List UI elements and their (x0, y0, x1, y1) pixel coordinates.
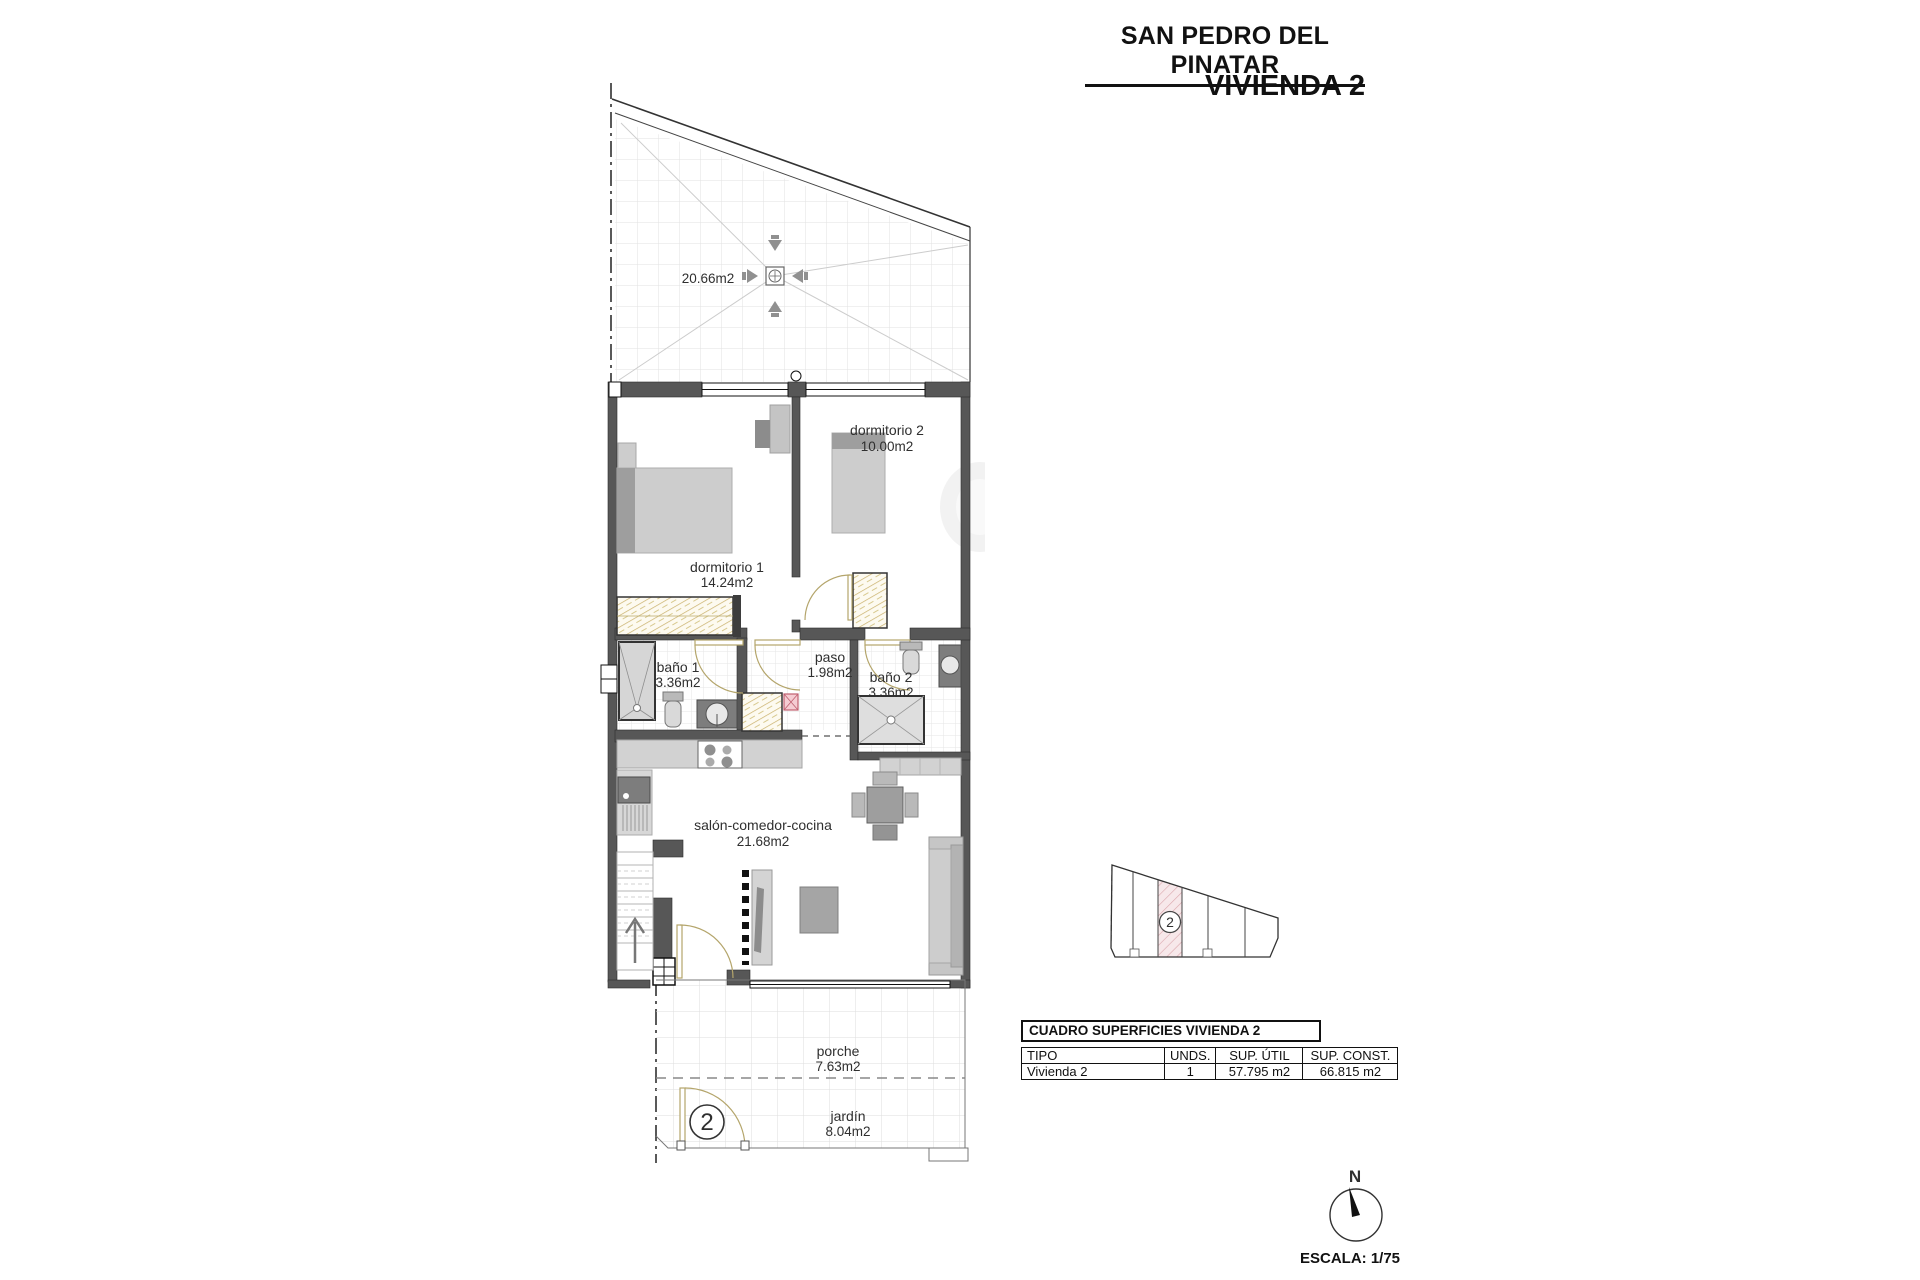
desk (770, 405, 790, 453)
floor-plan-drawing: 20.66m2 (595, 75, 985, 1170)
room-area-bano1: 3.36m2 (655, 675, 700, 690)
col-header-sup-util: SUP. ÚTIL (1216, 1048, 1303, 1064)
col-header-sup-const: SUP. CONST. (1303, 1048, 1398, 1064)
col-header-unds: UNDS. (1165, 1048, 1216, 1064)
wall-end-cap (609, 382, 621, 397)
drainer (623, 805, 647, 831)
room-label-paso: paso (815, 649, 846, 665)
bedside-table (618, 443, 636, 468)
scale-label: ESCALA: 1/75 (1285, 1250, 1415, 1267)
room-label-jardin: jardín (829, 1108, 865, 1124)
surface-table-title: CUADRO SUPERFICIES VIVIENDA 2 (1021, 1020, 1321, 1042)
stair-wall-stub (653, 840, 683, 857)
terrace-solarium: 20.66m2 (612, 99, 970, 382)
room-area-paso: 1.98m2 (807, 665, 852, 680)
living-furniture (746, 837, 964, 975)
chair (852, 793, 865, 817)
room-area-dormitorio1: 14.24m2 (701, 575, 754, 590)
room-area-jardin: 8.04m2 (825, 1124, 870, 1139)
dorm1-wardrobe-cap (733, 595, 741, 637)
washbasin (941, 656, 959, 674)
gate-post (741, 1141, 749, 1150)
key-plan-unit-dividers (1133, 872, 1245, 957)
downpipe-icon (791, 371, 801, 381)
north-label: N (1349, 1167, 1361, 1186)
cooktop (698, 741, 742, 768)
gate-post (677, 1141, 685, 1150)
dorm1-furniture (617, 405, 790, 553)
desk-chair (755, 420, 770, 448)
dining-table (867, 787, 903, 823)
floor-plan-sheet: SAN PEDRO DEL PINATAR VIVIENDA 2 (0, 0, 1920, 1280)
chair (905, 793, 918, 817)
bottom-wall-block (727, 970, 750, 985)
compass-icon: N (1315, 1162, 1405, 1252)
room-area-porche: 7.63m2 (815, 1059, 860, 1074)
sink (618, 777, 650, 803)
sofa-seat (929, 849, 951, 963)
top-wall-right (925, 382, 970, 397)
unit-number: 2 (700, 1109, 713, 1136)
paso-closet (742, 693, 782, 731)
unit-title: VIVIENDA 2 (1170, 70, 1400, 103)
bedroom-partition-stub (792, 620, 800, 632)
entrance-door (677, 925, 733, 978)
surface-table: CUADRO SUPERFICIES VIVIENDA 2 TIPO UNDS.… (1021, 1020, 1398, 1080)
dining-set (852, 772, 918, 840)
mid-wall-right (910, 628, 970, 640)
terrace-area-label: 20.66m2 (682, 271, 735, 286)
roof-drain-icon (766, 267, 784, 285)
bottom-wall-right (950, 980, 970, 988)
toilet-tank (900, 642, 922, 650)
surface-table-header-row: TIPO UNDS. SUP. ÚTIL SUP. CONST. (1022, 1048, 1398, 1064)
toilet-tank (663, 692, 683, 701)
top-wall-column (788, 382, 806, 397)
surface-table-data-row: Vivienda 2 1 57.795 m2 66.815 m2 (1022, 1064, 1398, 1080)
entry-window-icon (653, 958, 675, 985)
unit-number-badge: 2 (690, 1105, 724, 1139)
room-label-porche: porche (817, 1043, 860, 1059)
cell-sup-util: 57.795 m2 (1216, 1064, 1303, 1080)
terrace-tiles (615, 119, 970, 382)
sofa-back (951, 845, 963, 967)
key-plan-outline (1111, 865, 1278, 957)
dorm2-wardrobe (853, 573, 887, 628)
key-plan-unit-number: 2 (1166, 914, 1174, 930)
room-area-dormitorio2: 10.00m2 (861, 439, 914, 454)
room-label-dormitorio2: dormitorio 2 (850, 422, 924, 438)
room-label-dormitorio1: dormitorio 1 (690, 559, 764, 575)
col-header-tipo: TIPO (1022, 1048, 1165, 1064)
cell-unds: 1 (1165, 1064, 1216, 1080)
garden-step (929, 1148, 968, 1161)
room-area-bano2: 3.36m2 (868, 685, 913, 700)
north-arrow-icon (1349, 1187, 1360, 1217)
room-label-salon: salón-comedor-cocina (694, 817, 832, 833)
key-plan-door-notch (1130, 949, 1139, 957)
coffee-table (800, 887, 838, 933)
room-label-bano1: baño 1 (657, 659, 700, 675)
bed-pillow (617, 468, 635, 553)
key-plan-door-notch (1203, 949, 1212, 957)
bedroom-partition-wall (792, 397, 800, 577)
room-area-salon: 21.68m2 (737, 834, 790, 849)
dorm2-door (805, 575, 852, 620)
stairs (617, 852, 653, 970)
bano2-left-wall (850, 640, 858, 760)
toilet (665, 701, 681, 727)
cell-tipo: Vivienda 2 (1022, 1064, 1165, 1080)
room-label-bano2: baño 2 (870, 669, 913, 685)
bottom-wall-left (608, 980, 650, 988)
key-plan: 2 (1093, 852, 1293, 967)
chair (873, 772, 897, 785)
top-wall-left (621, 382, 702, 397)
mid-wall-center (800, 628, 865, 640)
cell-sup-const: 66.815 m2 (1303, 1064, 1398, 1080)
chair (873, 825, 897, 840)
